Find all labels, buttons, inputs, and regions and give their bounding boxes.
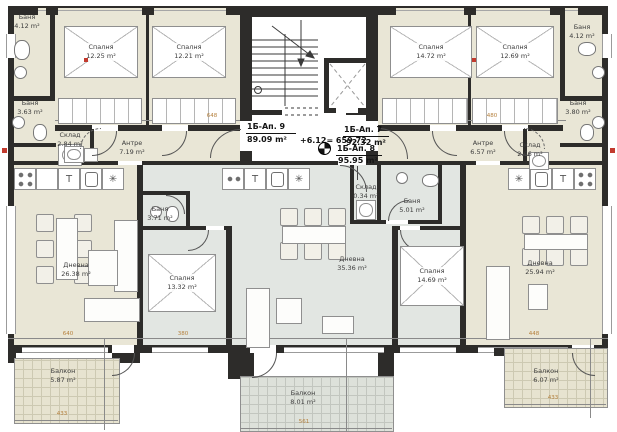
apartment-label: 1Б-Ап. 7 [344,125,382,134]
window [152,347,208,353]
sofa [84,298,140,322]
chair [36,266,54,284]
section-mark [610,148,615,153]
dimension-label: 380 [178,331,189,337]
coffee-table [276,298,302,324]
room-label: Антре6.57 m² [470,139,495,157]
bed: Спалня12.69 m² [476,26,554,78]
room-label: Склад2.84 m² [57,131,82,149]
apartment-label: 1Б-Ап. 8 [337,144,375,153]
room-label: Спалня12.25 m² [84,43,118,61]
sink-tap-icon: T [244,168,266,190]
window [400,347,456,353]
apartment-area: 89.09 m² [247,135,287,144]
door-arc [252,353,277,378]
bed: Спалня12.25 m² [64,26,138,78]
sofa [486,266,510,340]
room-label: Баня3.80 m² [565,99,590,117]
elevator [329,63,366,108]
dimension-label: 448 [529,331,540,337]
room-label: Спалня13.32 m² [165,274,199,292]
wall-core [366,6,378,121]
freezer-icon: ✳ [102,168,124,190]
hob-icon [574,168,596,190]
chair [36,214,54,232]
room-label: Склад0.34 m² [353,183,378,201]
freezer-icon: ✳ [288,168,310,190]
wall [50,6,55,98]
coffee-table [88,250,118,286]
toilet-icon [33,124,47,141]
dining-table [282,226,346,244]
toilet-icon [578,42,596,56]
kitchen-counter [36,168,58,190]
wall [378,125,563,131]
dimension-label: 433 [57,411,68,417]
balcony-tiles [240,376,394,432]
dimension-label: 640 [63,331,74,337]
washbasin-icon [592,66,605,79]
window [284,347,384,353]
wall-core [240,6,252,121]
room-label: Баня5.01 m² [399,197,424,215]
sink-icon [530,168,552,190]
room-label: Балкон5.87 m² [50,367,75,385]
wall [8,161,608,165]
chair [280,208,298,226]
room-label: Баня4.12 m² [14,13,39,31]
dimension-line [590,338,591,418]
sink-tap-icon: T [552,168,574,190]
wall [560,143,608,147]
toilet-icon [580,124,594,141]
wardrobe [472,98,558,124]
room-label: Баня3.71 m² [147,205,172,223]
wall-core [240,151,252,165]
dimension-label: 648 [207,113,218,119]
chair [304,208,322,226]
window [22,347,108,353]
dining-table [524,234,588,250]
bed: Спалня12.21 m² [152,26,226,78]
sink-icon [80,168,102,190]
chair [570,248,588,266]
tv-cabinet [322,316,354,334]
room-label: Спалня12.21 m² [172,43,206,61]
room-label: Склад2.66 m² [517,141,542,159]
dimension-line [240,428,392,429]
dimension-line [14,420,118,421]
door-gap [476,161,500,165]
door-arc [112,353,135,376]
wall [55,125,240,131]
toilet-icon [422,174,439,187]
washbasin-icon [396,172,408,184]
wall [438,165,442,222]
room-label: Антре7.19 m² [119,139,144,157]
chair [304,242,322,260]
dimension-label: 433 [548,395,559,401]
balcony-door-gap [112,345,134,353]
toilet-icon [14,40,30,60]
apartment-label: 1Б-Ап. 9 [247,122,285,131]
label-divider [246,133,296,134]
wall [560,6,565,98]
section-mark [472,58,476,62]
room-label: Балкон8.01 m² [290,389,315,407]
apartment-area: 95.95 m² [338,156,378,165]
sink-tap-icon: T [58,168,80,190]
room-label: Балкон6.07 m² [533,367,558,385]
wall [146,6,149,127]
coffee-table [528,284,548,310]
level-marker-icon [318,142,331,155]
washing-machine-icon [356,200,376,220]
wall [392,226,398,345]
room-label: Дневна26.38 m² [61,261,91,279]
chair [328,208,346,226]
room-label: Дневна25.94 m² [525,259,555,277]
section-mark [84,58,88,62]
bed: Спалня14.72 m² [390,26,472,78]
room-label: Спалня14.69 m² [415,267,449,285]
floor-plan: Спалня12.25 m² Спалня12.21 m² Спалня14.7… [0,0,617,432]
bed: Спалня14.69 m² [400,246,464,306]
chair [522,216,540,234]
hob-icon [14,168,36,190]
room-label: Баня4.12 m² [569,23,594,41]
section-mark [2,148,7,153]
window [602,206,612,334]
washbasin-icon [14,66,27,79]
window [602,34,612,58]
elevator-door-gap [336,108,358,113]
wall [8,143,56,147]
wall [226,230,232,345]
sofa [246,288,270,348]
wardrobe [152,98,236,124]
dimension-label: 561 [299,419,310,425]
room-label: Спалня12.69 m² [498,43,532,61]
stairs [252,14,318,118]
washbasin-icon [12,116,25,129]
label-divider [343,136,389,137]
chair [546,216,564,234]
room-label: Дневна35.36 m² [337,255,367,273]
freezer-icon: ✳ [508,168,530,190]
dimension-line [8,338,608,339]
bed: Спалня13.32 m² [148,254,216,312]
washbasin-icon [592,116,605,129]
window [6,206,16,334]
room-label: Спалня14.72 m² [414,43,448,61]
hob-icon [222,168,244,190]
chair [36,240,54,258]
dimension-label: 480 [487,113,498,119]
room-label: Баня3.63 m² [17,99,42,117]
wardrobe [58,98,142,124]
dimension-line [104,338,105,430]
dimension-line [346,338,347,432]
wall [186,191,190,230]
sink-icon [266,168,288,190]
chair [570,216,588,234]
chair [280,242,298,260]
wardrobe [382,98,468,124]
wall-stub [494,348,504,356]
